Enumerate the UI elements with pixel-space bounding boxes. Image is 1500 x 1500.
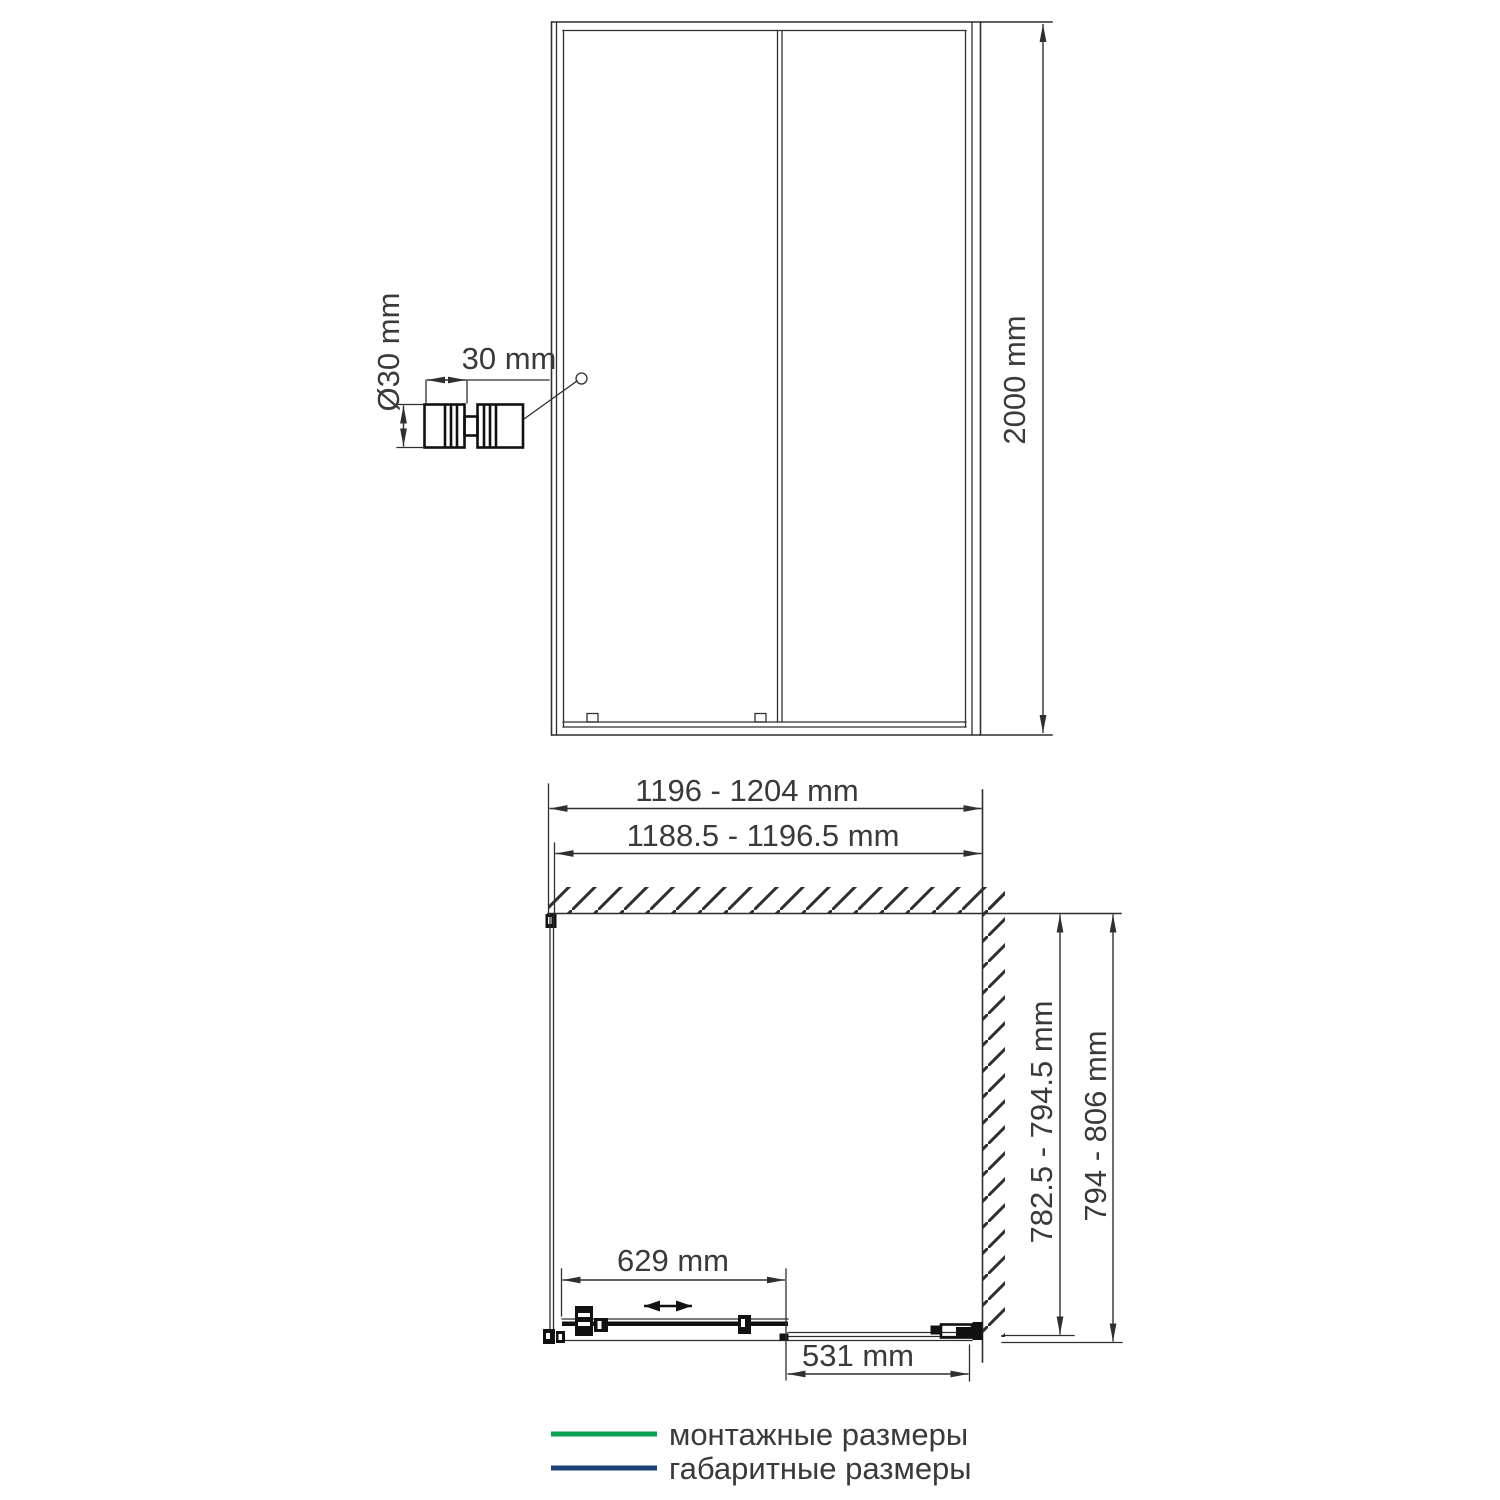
plan-view: 1196 - 1204 mm 1188.5 - 1196.5 mm 782.5 … [543, 773, 1122, 1381]
handle-neck [465, 417, 478, 436]
handle-diameter-label: Ø30 mm [371, 293, 406, 412]
door-travel-label: 629 mm [617, 1243, 729, 1278]
front-view [552, 22, 1053, 735]
depth-dimensions: 782.5 - 794.5 mm 794 - 806 mm [1002, 915, 1122, 1343]
roller-carriage-left [575, 1306, 593, 1336]
side-wall-hatching [983, 887, 1006, 1337]
wall-bracket-right-clip [931, 1326, 942, 1335]
handle-depth-label: 30 mm [462, 341, 557, 376]
legend-overall-label: габаритные размеры [669, 1451, 972, 1486]
fixed-panel-label: 531 mm [802, 1338, 914, 1373]
handle-detail: Ø30 mm 30 mm [371, 293, 577, 448]
back-wall-hatching [548, 887, 1005, 913]
roller-slot [578, 1313, 590, 1317]
legend: монтажные размеры габаритные размеры [551, 1417, 972, 1486]
panel-connector [780, 1334, 789, 1341]
mounting-depth-label: 782.5 - 794.5 mm [1024, 1001, 1059, 1244]
door-travel-dimension: 629 mm [562, 1243, 787, 1380]
roller-slot [741, 1319, 745, 1327]
overall-width-label: 1196 - 1204 mm [635, 773, 858, 808]
technical-drawing: 2000 mm Ø30 mm 30 mm [0, 0, 1500, 1500]
bottom-roller-left [587, 714, 598, 723]
bottom-roller-right [755, 714, 766, 723]
height-dim-label: 2000 mm [997, 315, 1032, 444]
mounting-width-label: 1188.5 - 1196.5 mm [627, 818, 900, 853]
roller-slot [598, 1321, 602, 1329]
fixed-panel-dimension: 531 mm [788, 1338, 970, 1381]
drawing-canvas: 2000 mm Ø30 mm 30 mm [0, 0, 1500, 1500]
wall-bracket-right-fill [956, 1327, 972, 1337]
bracket-slot [559, 1334, 563, 1340]
door-mechanism [543, 1306, 983, 1344]
bracket-slot [546, 1333, 550, 1339]
handle-mount-circle [576, 373, 587, 384]
handle-leader-line [524, 381, 577, 419]
legend-mounting-label: монтажные размеры [669, 1417, 968, 1452]
height-dimension: 2000 mm [997, 24, 1043, 733]
wall-end-cap [973, 1322, 983, 1340]
roller-slot [578, 1322, 590, 1326]
overall-depth-label: 794 - 806 mm [1078, 1030, 1113, 1221]
